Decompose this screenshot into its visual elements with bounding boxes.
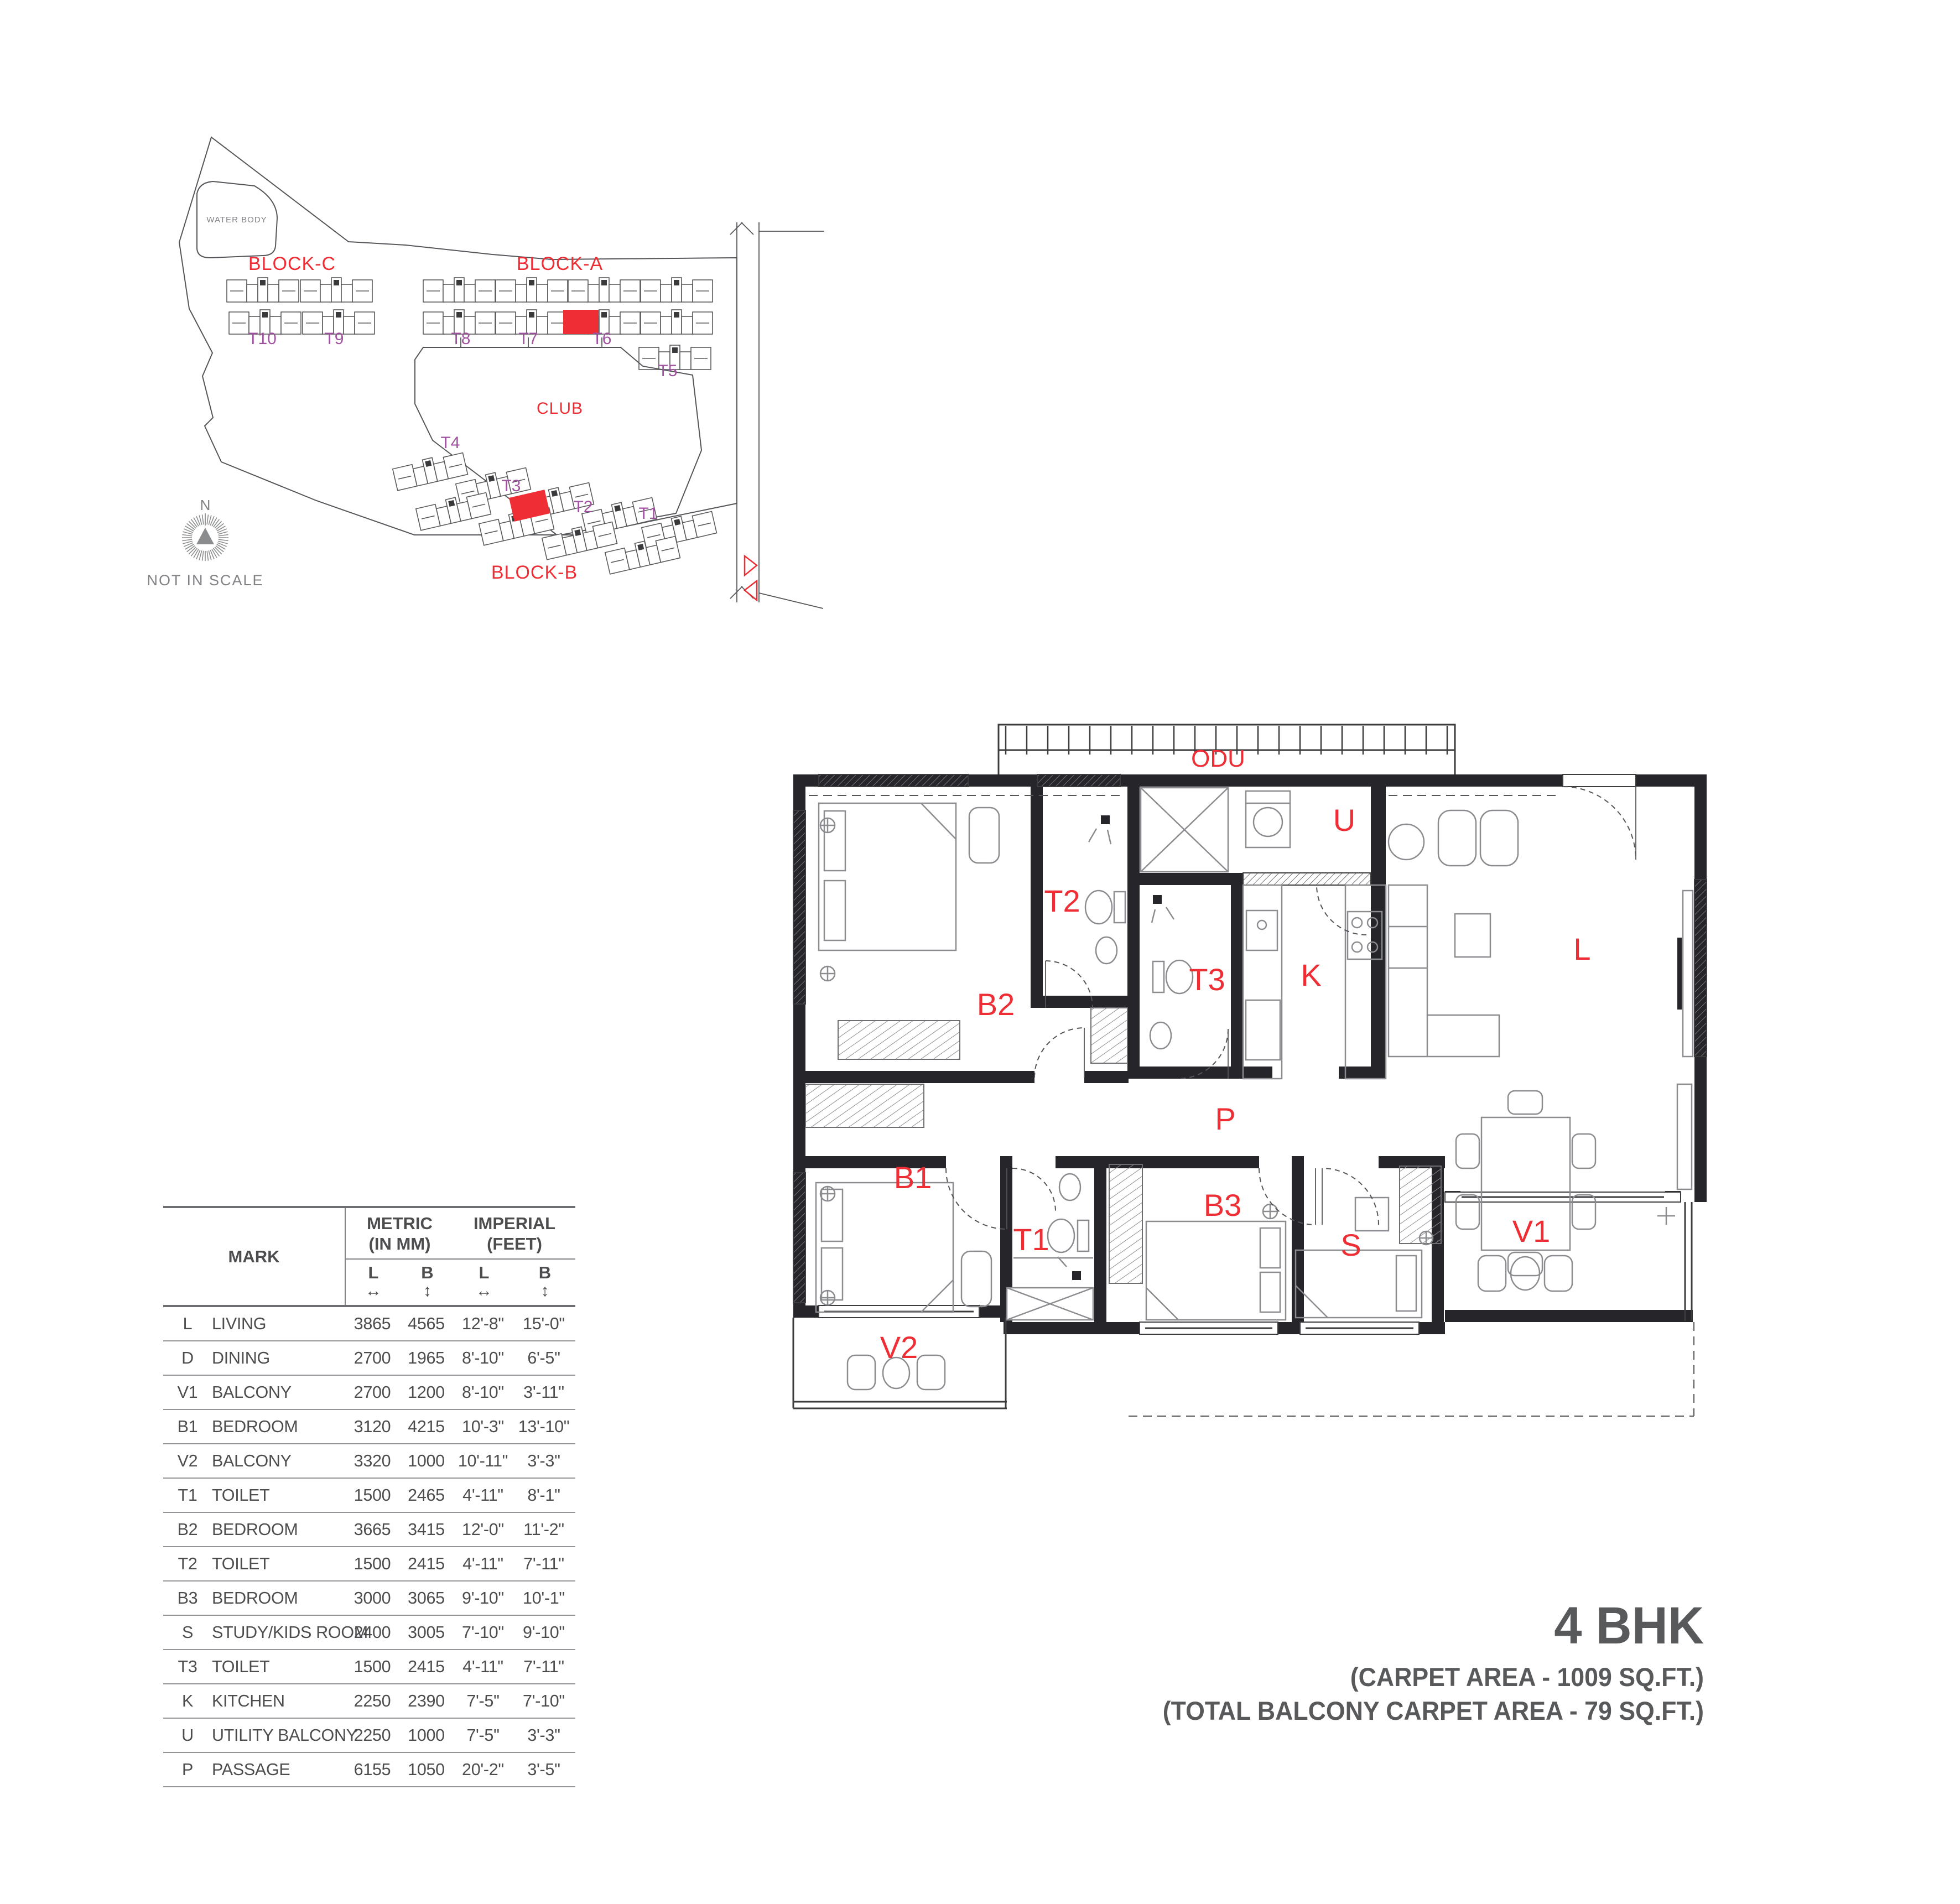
room-label-p: P bbox=[1215, 1101, 1235, 1136]
table-row: B3 BEDROOM 3000 3065 9'-10" 10'-1" bbox=[163, 1582, 575, 1616]
tower-label-t5: T5 bbox=[658, 362, 677, 380]
table-row: B2 BEDROOM 3665 3415 12'-0" 11'-2" bbox=[163, 1513, 575, 1547]
shower-icon bbox=[1153, 895, 1162, 904]
room-label-k: K bbox=[1301, 958, 1321, 992]
room-label-l: L bbox=[1573, 932, 1590, 966]
header-mark: MARK bbox=[163, 1208, 346, 1305]
block-c-buildings bbox=[227, 278, 375, 334]
room-label-v2: V2 bbox=[880, 1330, 918, 1365]
odu-deck: ODU bbox=[999, 725, 1455, 774]
tower-label-t4: T4 bbox=[440, 434, 460, 452]
v-arrow-icon: ↕ bbox=[401, 1282, 454, 1300]
road bbox=[730, 222, 824, 608]
room-label-b1: B1 bbox=[894, 1160, 932, 1195]
room-label-t2: T2 bbox=[1044, 883, 1080, 918]
unit-type-title: 4 BHK bbox=[874, 1600, 1704, 1652]
header-metric-b: B ↕ bbox=[401, 1260, 454, 1305]
toilet-t2-fixtures bbox=[1085, 815, 1125, 964]
header-imperial-b: B ↕ bbox=[514, 1260, 575, 1305]
bed-b3 bbox=[1146, 1221, 1286, 1320]
table-row: P PASSAGE 6155 1050 20'-2" 3'-5" bbox=[163, 1753, 575, 1787]
balcony-area-line: (TOTAL BALCONY CARPET AREA - 79 SQ.FT.) bbox=[874, 1697, 1704, 1724]
side-table bbox=[1389, 824, 1424, 860]
tv-unit bbox=[1683, 891, 1693, 1057]
header-metric: METRIC (IN MM) bbox=[346, 1208, 454, 1258]
table-row: B1 BEDROOM 3120 4215 10'-3" 13'-10" bbox=[163, 1410, 575, 1444]
h-arrow-icon: ↔ bbox=[454, 1282, 514, 1300]
table-row: T1 TOILET 1500 2465 4'-11" 8'-1" bbox=[163, 1479, 575, 1513]
header-imperial: IMPERIAL (FEET) bbox=[454, 1208, 575, 1258]
living-furniture bbox=[1389, 810, 1693, 1057]
tower-label-t6: T6 bbox=[592, 330, 611, 348]
block-a-label: BLOCK-A bbox=[517, 253, 603, 274]
room-label-b3: B3 bbox=[1204, 1188, 1242, 1222]
tower-label-t7: T7 bbox=[518, 330, 538, 348]
room-label-v1: V1 bbox=[1512, 1214, 1551, 1248]
room-label-s: S bbox=[1340, 1227, 1361, 1262]
shower-icon bbox=[1072, 1271, 1081, 1280]
room-label-t1: T1 bbox=[1013, 1222, 1049, 1257]
block-b-label: BLOCK-B bbox=[491, 562, 578, 583]
table-row: V1 BALCONY 2700 1200 8'-10" 3'-11" bbox=[163, 1376, 575, 1410]
room-label-u: U bbox=[1333, 803, 1355, 837]
dining-furniture bbox=[1456, 1084, 1692, 1276]
exit-arrow-icon bbox=[745, 581, 757, 600]
armchair bbox=[1480, 810, 1518, 866]
balcony-v1-furniture bbox=[1478, 1207, 1675, 1291]
entry-arrow-icon bbox=[745, 556, 757, 575]
north-label: N bbox=[200, 497, 211, 513]
table-header: MARK METRIC (IN MM) IMPERIAL (FEET) L ↔ … bbox=[163, 1206, 575, 1307]
block-b-buildings bbox=[392, 451, 717, 574]
not-in-scale-label: NOT IN SCALE bbox=[147, 572, 263, 589]
header-imperial-l: L ↔ bbox=[454, 1260, 514, 1305]
table-row: T3 TOILET 1500 2415 4'-11" 7'-11" bbox=[163, 1650, 575, 1684]
site-key-plan: WATER BODY CLUB bbox=[171, 116, 824, 614]
block-c-label: BLOCK-C bbox=[248, 253, 336, 274]
table-row: U UTILITY BALCONY 2250 1000 7'-5" 3'-3" bbox=[163, 1719, 575, 1753]
toilet-t3-fixtures bbox=[1150, 895, 1193, 1049]
shower-icon bbox=[1101, 815, 1110, 824]
table-row: K KITCHEN 2250 2390 7'-5" 7'-10" bbox=[163, 1684, 575, 1719]
carpet-area-line: (CARPET AREA - 1009 SQ.FT.) bbox=[874, 1663, 1704, 1690]
tower-label-t9: T9 bbox=[324, 330, 344, 348]
table-row: S STUDY/KIDS ROOM 2400 3005 7'-10" 9'-10… bbox=[163, 1616, 575, 1650]
room-label-odu: ODU bbox=[1191, 745, 1245, 772]
tower-label-t1: T1 bbox=[638, 504, 658, 523]
tower-label-t10: T10 bbox=[248, 330, 277, 348]
bed-b2 bbox=[819, 803, 999, 950]
tv-icon bbox=[1677, 938, 1682, 1010]
bed-b1 bbox=[816, 1183, 991, 1312]
north-arrow-icon: N NOT IN SCALE bbox=[147, 497, 263, 589]
coffee-table bbox=[1455, 914, 1490, 957]
room-label-b2: B2 bbox=[977, 987, 1015, 1022]
room-label-t3: T3 bbox=[1189, 962, 1225, 997]
header-metric-l: L ↔ bbox=[346, 1260, 401, 1305]
h-arrow-icon: ↔ bbox=[346, 1282, 401, 1300]
table-row: L LIVING 3865 4565 12'-8" 15'-0" bbox=[163, 1307, 575, 1341]
table-body: L LIVING 3865 4565 12'-8" 15'-0" D DININ… bbox=[163, 1307, 575, 1787]
dimension-table: MARK METRIC (IN MM) IMPERIAL (FEET) L ↔ … bbox=[163, 1206, 575, 1787]
table-row: D DINING 2700 1965 8'-10" 6'-5" bbox=[163, 1341, 575, 1376]
water-body: WATER BODY bbox=[197, 181, 277, 258]
tower-label-t3: T3 bbox=[501, 477, 521, 495]
washing-machine-icon bbox=[1246, 791, 1290, 847]
block-a-buildings bbox=[423, 278, 713, 370]
tower-label-t2: T2 bbox=[573, 498, 592, 516]
tower-label-t8: T8 bbox=[451, 330, 470, 348]
v-arrow-icon: ↕ bbox=[514, 1282, 575, 1300]
unit-floor-plan: ODU bbox=[786, 697, 1726, 1427]
club-label: CLUB bbox=[537, 399, 583, 418]
armchair bbox=[1438, 810, 1476, 866]
title-block: 4 BHK (CARPET AREA - 1009 SQ.FT.) (TOTAL… bbox=[874, 1600, 1704, 1725]
console bbox=[1677, 1084, 1692, 1189]
water-body-label: WATER BODY bbox=[206, 215, 267, 225]
table-row: T2 TOILET 1500 2415 4'-11" 7'-11" bbox=[163, 1547, 575, 1582]
table-row: V2 BALCONY 3320 1000 10'-11" 3'-3" bbox=[163, 1444, 575, 1479]
